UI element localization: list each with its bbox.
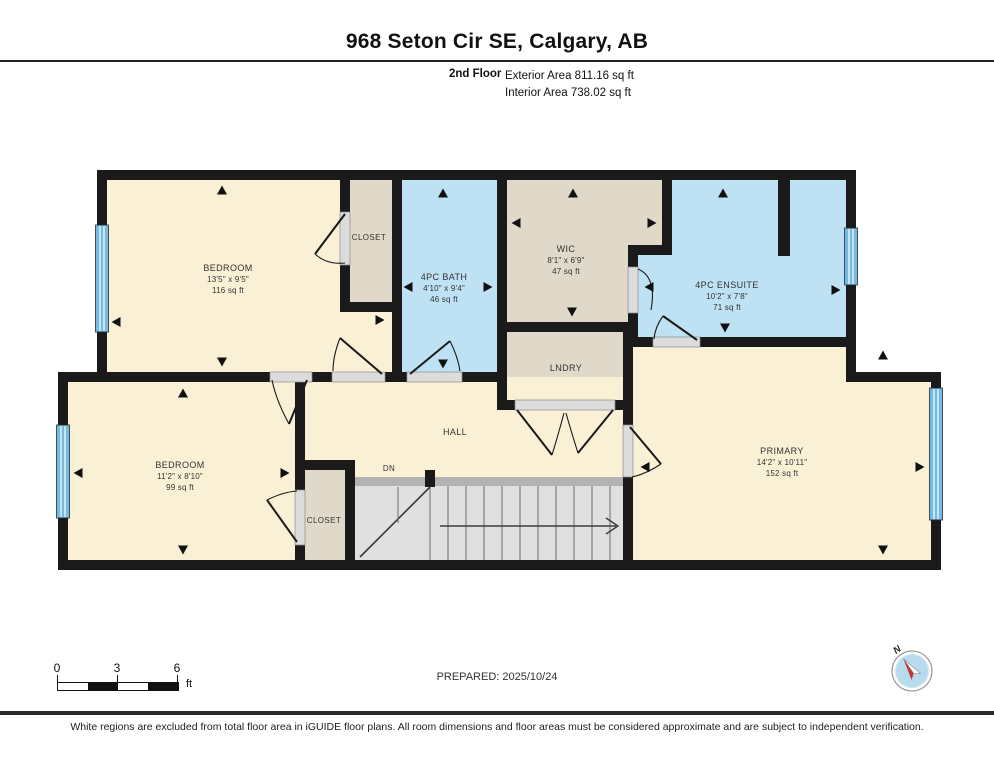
room-bedroom-2 xyxy=(63,377,300,565)
scale-ruler xyxy=(57,682,179,691)
compass-rose: N xyxy=(882,641,942,701)
bedroom-1-name: BEDROOM xyxy=(203,263,252,273)
primary-name: PRIMARY xyxy=(760,446,804,456)
window xyxy=(930,388,943,520)
bedroom-1-dim: 13'5" x 9'5" xyxy=(207,275,249,284)
laundry-name: LNDRY xyxy=(550,363,582,373)
ensuite-dim: 10'2" x 7'8" xyxy=(706,292,748,301)
bedroom-2-dim: 11'2" x 8'10" xyxy=(157,472,203,481)
wic-dim: 8'1" x 6'9" xyxy=(547,256,584,265)
floorplan-page: 968 Seton Cir SE, Calgary, AB 2nd Floor … xyxy=(0,0,994,768)
window xyxy=(57,425,70,518)
wic-area: 47 sq ft xyxy=(552,267,580,276)
window xyxy=(845,228,858,285)
bedroom-2-area: 99 sq ft xyxy=(166,483,194,492)
disclaimer-text: White regions are excluded from total fl… xyxy=(0,721,994,733)
closet-2-name: CLOSET xyxy=(307,516,341,525)
bath-area: 46 sq ft xyxy=(430,295,458,304)
room-closet-2 xyxy=(300,465,350,565)
primary-dim: 14'2" x 10'11" xyxy=(757,458,808,467)
hall-name: HALL xyxy=(443,427,467,437)
floorplan-drawing: BEDROOM 13'5" x 9'5" 116 sq ft CLOSET 4P… xyxy=(0,0,994,768)
ensuite-area: 71 sq ft xyxy=(713,303,741,312)
prepared-date: PREPARED: 2025/10/24 xyxy=(0,671,994,683)
ensuite-name: 4PC ENSUITE xyxy=(695,280,758,290)
stairs-down-label: DN xyxy=(383,464,395,473)
wic-name: WIC xyxy=(557,244,576,254)
footer-divider xyxy=(0,711,994,715)
bath-dim: 4'10" x 9'4" xyxy=(423,284,465,293)
closet-1-name: CLOSET xyxy=(352,233,386,242)
bath-name: 4PC BATH xyxy=(421,272,468,282)
window xyxy=(96,225,109,332)
room-closet-1 xyxy=(345,180,397,307)
primary-area: 152 sq ft xyxy=(766,469,799,478)
bedroom-1-area: 116 sq ft xyxy=(212,286,244,295)
bedroom-2-name: BEDROOM xyxy=(155,460,204,470)
staircase xyxy=(350,477,628,565)
